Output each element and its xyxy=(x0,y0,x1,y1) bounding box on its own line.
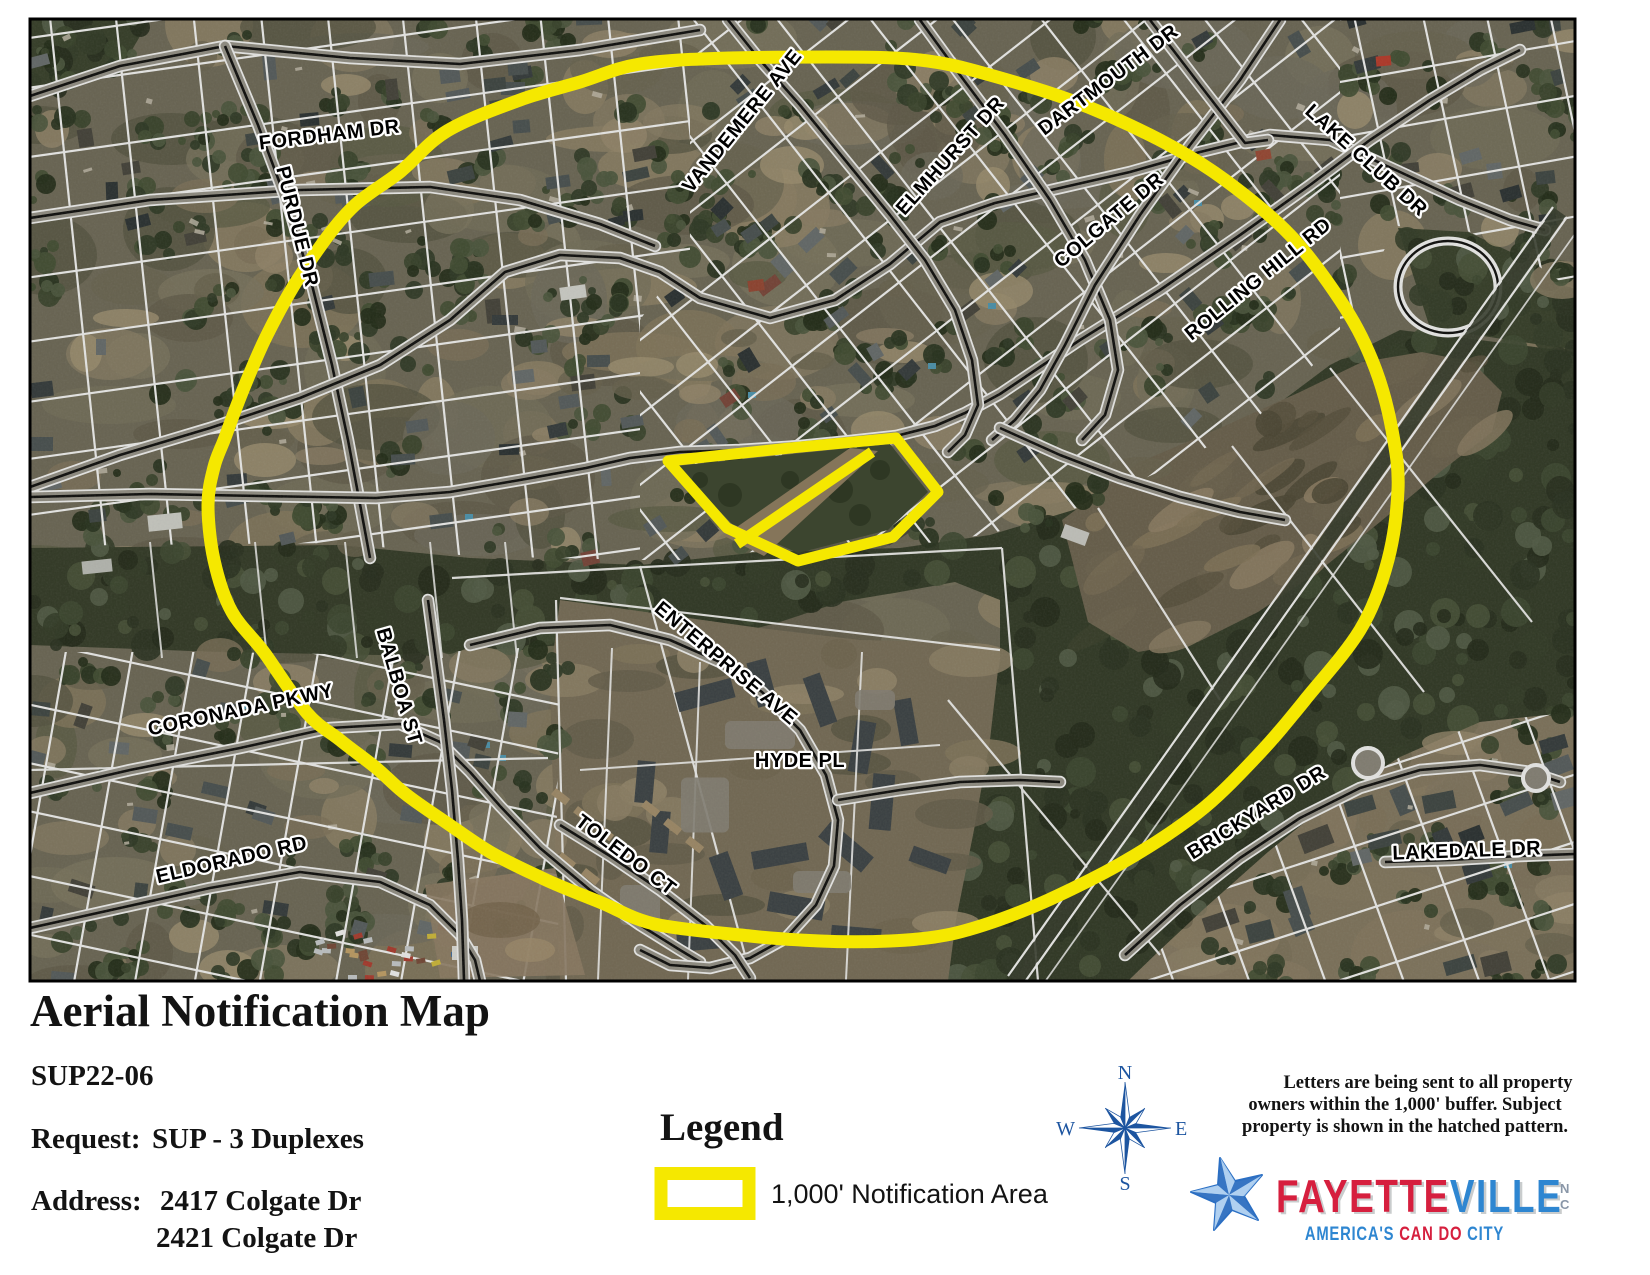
svg-text:N: N xyxy=(1560,1181,1569,1196)
svg-text:N: N xyxy=(1118,1062,1132,1084)
svg-text:2421 Colgate Dr: 2421 Colgate Dr xyxy=(156,1222,357,1254)
svg-text:S: S xyxy=(1119,1173,1130,1195)
svg-text:2417 Colgate Dr: 2417 Colgate Dr xyxy=(160,1185,361,1217)
svg-text:HYDE PL: HYDE PL xyxy=(755,750,845,772)
svg-text:owners within the 1,000' buffe: owners within the 1,000' buffer. Subject xyxy=(1248,1095,1562,1115)
svg-text:SUP22-06: SUP22-06 xyxy=(31,1060,153,1092)
svg-text:Legend: Legend xyxy=(660,1106,784,1149)
svg-text:FAYETTEVILLE: FAYETTEVILLE xyxy=(1276,1170,1562,1222)
svg-text:Request:: Request: xyxy=(31,1123,141,1155)
svg-text:Aerial Notification Map: Aerial Notification Map xyxy=(30,986,490,1036)
svg-text:E: E xyxy=(1175,1118,1187,1140)
svg-text:Letters are being sent to all: Letters are being sent to all property xyxy=(1283,1073,1573,1093)
svg-text:Address:: Address: xyxy=(31,1185,142,1217)
svg-text:C: C xyxy=(1560,1197,1570,1212)
svg-text:SUP - 3 Duplexes: SUP - 3 Duplexes xyxy=(152,1123,364,1155)
svg-text:AMERICA'S CAN DO CITY: AMERICA'S CAN DO CITY xyxy=(1305,1223,1504,1244)
svg-text:1,000' Notification Area: 1,000' Notification Area xyxy=(771,1179,1049,1209)
svg-text:W: W xyxy=(1056,1118,1075,1140)
svg-text:property is shown in the hatch: property is shown in the hatched pattern… xyxy=(1242,1117,1568,1137)
